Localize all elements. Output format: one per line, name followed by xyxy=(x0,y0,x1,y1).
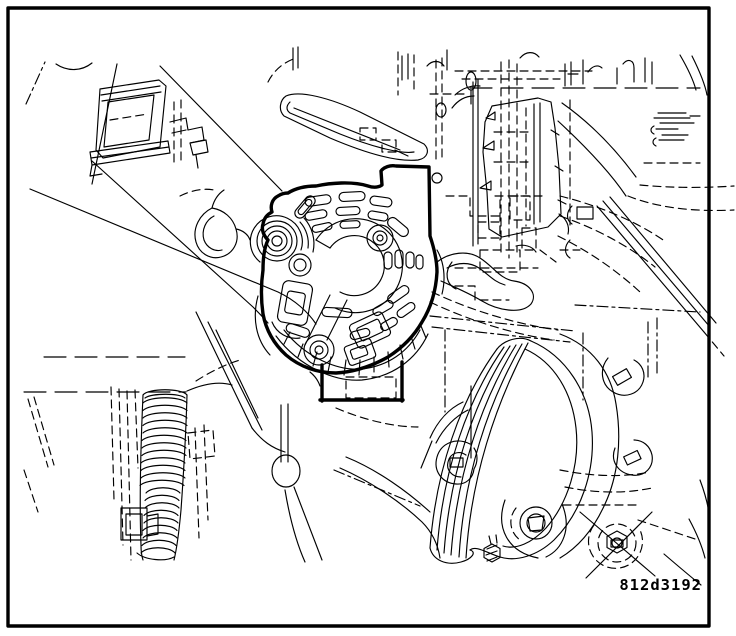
figure-code: 812d3192 xyxy=(619,576,702,594)
generator-terminal-block xyxy=(277,280,314,327)
corrugated-hose xyxy=(24,357,240,560)
pulleys-and-bolts xyxy=(484,358,710,585)
engine-cover-top-right xyxy=(430,55,734,356)
illustration-page: 812d3192 xyxy=(0,0,736,636)
generator-outline xyxy=(262,166,438,373)
generator xyxy=(250,166,444,380)
top-left-panel xyxy=(26,62,282,191)
engine-bay-illustration: 812d3192 xyxy=(0,0,736,636)
